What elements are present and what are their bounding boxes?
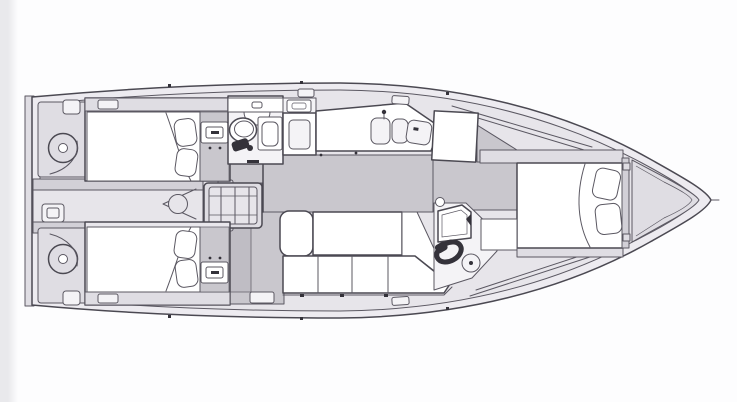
pillow xyxy=(173,118,198,148)
stove-top xyxy=(289,120,310,149)
fitting-dot xyxy=(320,154,323,157)
bulkhead-fitting xyxy=(623,234,630,241)
gimbal-stove xyxy=(405,119,432,145)
port-helm-station xyxy=(38,100,88,177)
cleat-icon xyxy=(446,92,449,95)
pillow xyxy=(174,259,199,289)
stool-hub xyxy=(469,261,473,265)
cleat-icon xyxy=(168,315,171,318)
shelf-tray xyxy=(287,100,311,112)
shelf-band-top xyxy=(480,150,623,163)
deck-hatch xyxy=(392,95,410,104)
head-compartment xyxy=(228,96,283,164)
cleat-icon xyxy=(168,84,171,87)
pillow xyxy=(594,203,622,235)
wardrobe xyxy=(432,111,479,162)
speaker-knob xyxy=(436,198,445,207)
basin-fitting xyxy=(252,102,262,108)
saloon-table xyxy=(313,212,402,255)
vanity-handle xyxy=(211,271,219,274)
vanity-handle xyxy=(211,131,219,134)
door-sill xyxy=(247,160,259,163)
bulkhead-fitting xyxy=(623,163,630,170)
aft-cabin-port xyxy=(85,98,230,181)
fitting-dot xyxy=(219,147,222,150)
locker-hatch xyxy=(98,294,118,303)
page-background xyxy=(0,0,737,402)
head-corridor-floor xyxy=(228,163,263,183)
aft-cabin-starboard xyxy=(85,222,230,305)
saloon-floor xyxy=(262,155,433,212)
pillow xyxy=(174,148,199,178)
cleat-icon xyxy=(300,317,303,320)
chart-table xyxy=(438,205,471,242)
shelf-band-bottom xyxy=(517,248,623,257)
helm-instrument-pod xyxy=(63,291,80,305)
wheel-hub xyxy=(59,255,68,264)
fitting-dot xyxy=(209,147,212,150)
settee-foot xyxy=(300,294,304,297)
settee-chaise xyxy=(280,211,313,256)
engine-hatch-ring xyxy=(169,195,188,214)
fitting-dot xyxy=(219,257,222,260)
landing-locker xyxy=(250,292,274,303)
cleat-icon xyxy=(446,307,449,310)
cabin-seat xyxy=(481,219,517,250)
sink-bowl-left xyxy=(371,118,390,144)
yacht-floor-plan xyxy=(0,0,737,402)
toilet xyxy=(230,118,257,142)
deck-hatch xyxy=(298,89,314,97)
steps-inner xyxy=(209,187,257,224)
starboard-helm-station xyxy=(38,228,88,305)
helm-instrument-pod xyxy=(63,100,80,114)
settee-foot xyxy=(340,294,344,297)
locker-hatch xyxy=(98,100,118,109)
wheel-hub xyxy=(59,144,68,153)
sink-bowl-right xyxy=(392,119,408,143)
faucet-base xyxy=(382,110,386,114)
fitting-dot xyxy=(355,152,358,155)
settee-foot xyxy=(384,294,388,297)
pillow xyxy=(173,230,198,260)
toilet-pump xyxy=(247,145,253,151)
cleat-icon xyxy=(300,81,303,84)
transom-locker xyxy=(42,204,64,222)
deck-hatch xyxy=(392,296,410,305)
fitting-dot xyxy=(209,257,212,260)
